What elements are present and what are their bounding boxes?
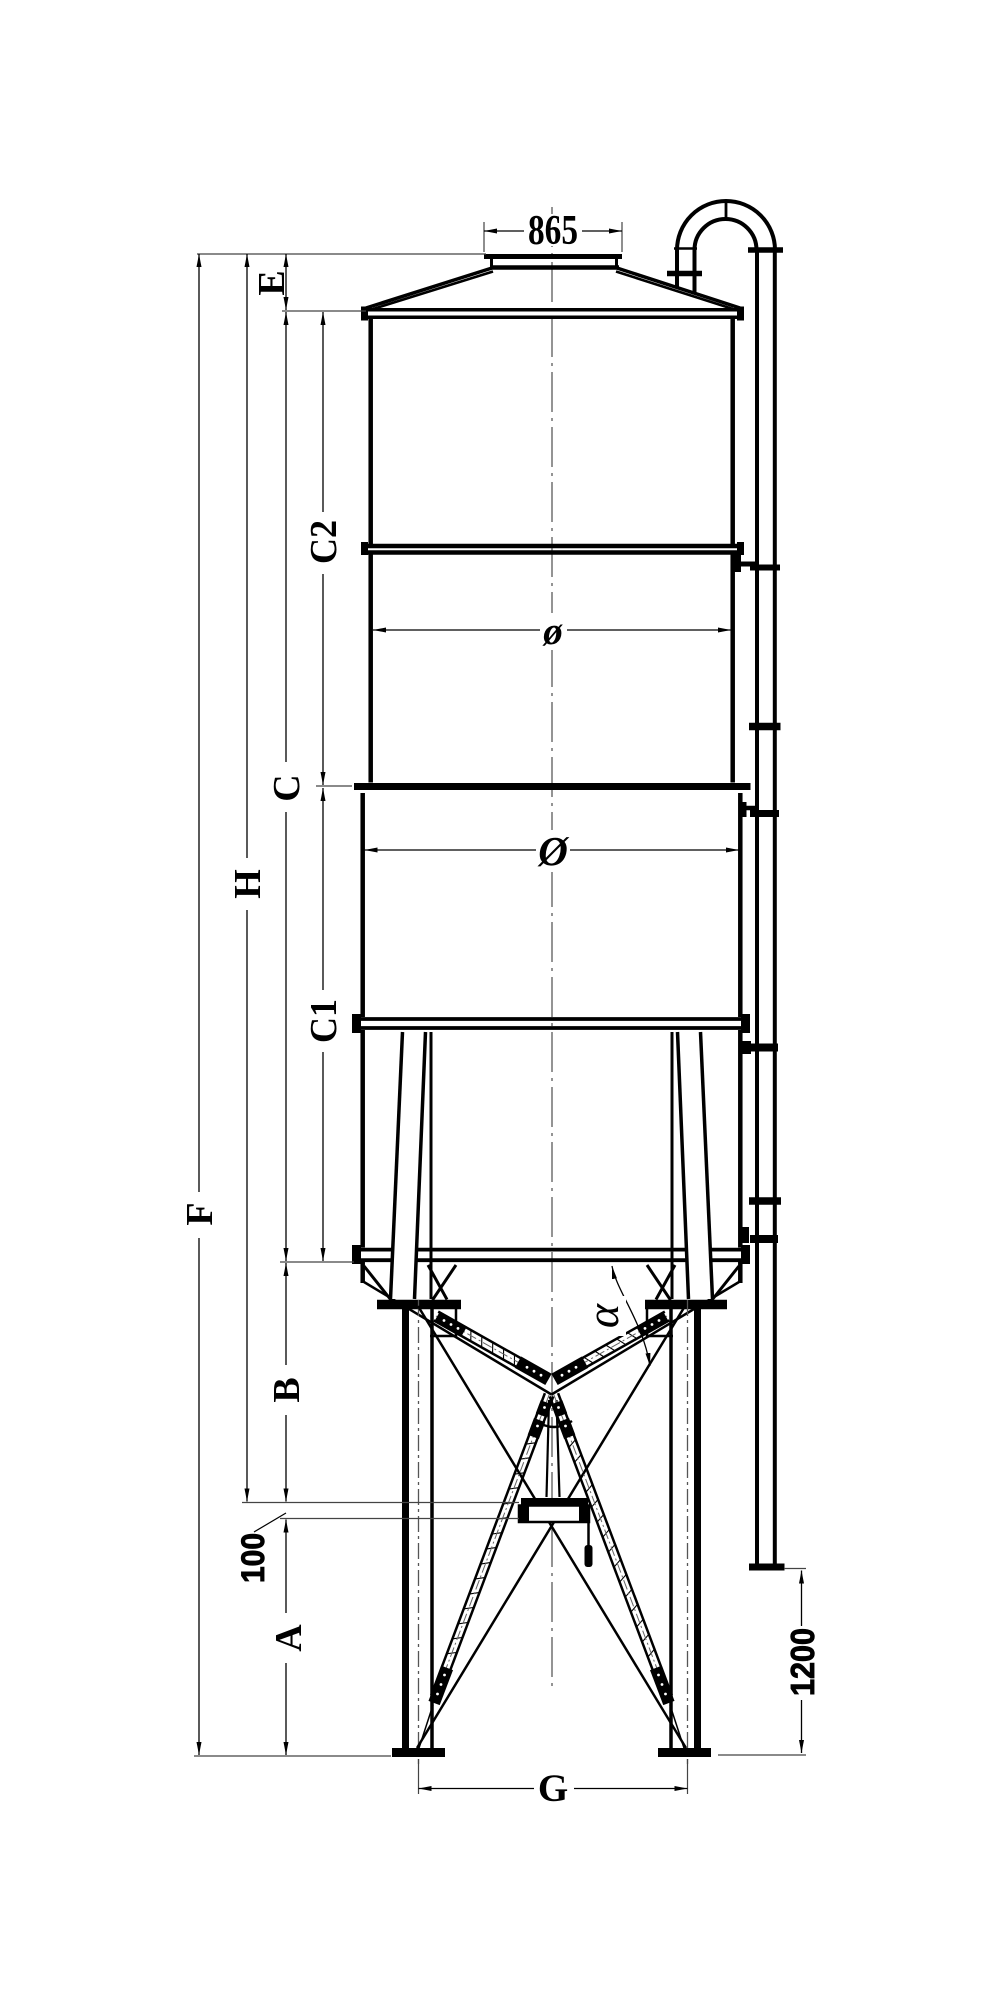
svg-text:C: C [266,774,308,801]
svg-text:B: B [266,1377,308,1402]
svg-text:A: A [268,1624,310,1652]
svg-text:F: F [179,1202,221,1225]
svg-text:C1: C1 [303,999,345,1043]
svg-text:G: G [538,1767,568,1810]
svg-text:ø: ø [542,610,563,653]
svg-text:E: E [251,270,293,295]
svg-text:1200: 1200 [784,1628,821,1696]
svg-text:H: H [227,869,269,899]
svg-text:100: 100 [235,1533,271,1583]
svg-text:α: α [577,1303,628,1328]
svg-text:Ø: Ø [537,828,570,874]
svg-text:C2: C2 [303,520,345,564]
svg-text:865: 865 [528,208,578,254]
